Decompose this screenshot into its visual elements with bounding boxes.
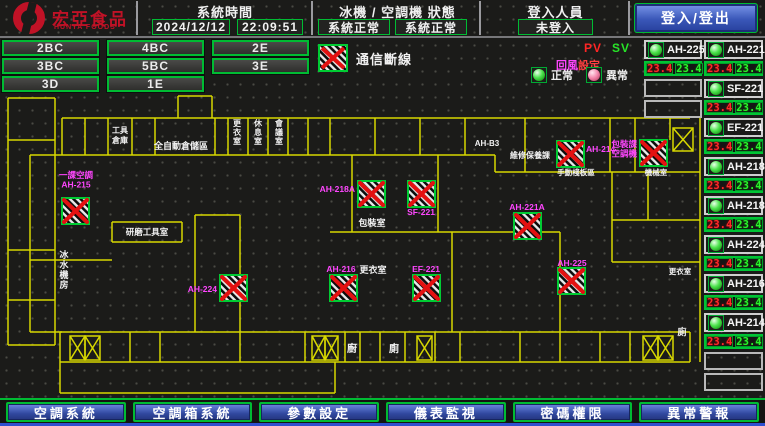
status-led-icon	[708, 315, 724, 331]
sv-value: 23.4	[735, 297, 762, 308]
map-marker-AH-224[interactable]: AH-224	[188, 275, 247, 301]
pv-value: 23.4	[706, 258, 733, 269]
map-marker-label: AH-218A	[320, 184, 355, 194]
sv-value: 23.4	[735, 102, 762, 113]
equipment-AH-218B[interactable]: AH-218B	[704, 196, 763, 215]
svg-text:手動棧板區: 手動棧板區	[557, 167, 595, 177]
map-marker-label: AH-224	[188, 284, 218, 294]
equipment-AH-224[interactable]: AH-224	[704, 235, 763, 254]
pv-value: 23.4	[706, 180, 733, 191]
pv-value: 23.4	[646, 63, 673, 74]
equipment-name: AH-218A	[727, 161, 765, 173]
svg-text:更衣室: 更衣室	[669, 266, 692, 276]
equipment-name: AH-214	[727, 317, 765, 329]
map-marker-label: EF-221	[412, 264, 440, 274]
equipment-name: AH-224	[727, 239, 765, 251]
equipment-slot-empty	[644, 100, 702, 118]
status-led-icon	[708, 198, 724, 214]
floor-button-4bc[interactable]: 4BC	[107, 40, 204, 56]
bottom-nav-bar: 空調系統空調箱系統參數設定儀表監視密碼權限異常警報	[0, 398, 765, 426]
floor-button-5bc[interactable]: 5BC	[107, 58, 204, 74]
nav-parameter-settings[interactable]: 參數設定	[259, 402, 379, 422]
sv-legend-label: SV	[612, 41, 630, 55]
equipment-values-AH-214: 23.423.4	[704, 334, 763, 349]
equipment-values-AH-218A: 23.423.4	[704, 178, 763, 193]
svg-text:會議室: 會議室	[274, 118, 284, 146]
equipment-EF-221[interactable]: EF-221	[704, 118, 763, 137]
equipment-column-right: AH-221A23.423.4SF-22123.423.4EF-22123.42…	[704, 40, 763, 394]
equipment-name: SF-221	[727, 83, 763, 95]
divider	[136, 1, 138, 35]
top-bar: 宏亞食品 HUNYA FOODS 系統時間 2024/12/12 22:09:5…	[0, 0, 765, 38]
brand-subtitle: HUNYA FOODS	[54, 24, 116, 31]
comm-loss-legend: 通信斷線	[318, 44, 412, 72]
nav-password-authority[interactable]: 密碼權限	[513, 402, 633, 422]
nav-alarm[interactable]: 異常警報	[639, 402, 759, 422]
status-led-icon	[708, 159, 724, 175]
equipment-values-SF-221: 23.423.4	[704, 100, 763, 115]
sv-value: 23.4	[735, 258, 762, 269]
login-logout-button[interactable]: 登入/登出	[634, 3, 758, 33]
hunya-logo-icon	[8, 2, 50, 35]
floor-button-1e[interactable]: 1E	[107, 76, 204, 92]
svg-text:冰水機房: 冰水機房	[59, 249, 69, 290]
floor-button-2e[interactable]: 2E	[212, 40, 309, 56]
svg-text:AH-B3: AH-B3	[475, 139, 500, 148]
svg-text:機械室: 機械室	[645, 167, 668, 177]
equipment-name: AH-225	[667, 44, 705, 56]
map-marker-label: AH-221A	[509, 202, 544, 212]
map-marker-AH-225[interactable]: AH-225	[557, 258, 587, 294]
svg-text:廁: 廁	[677, 326, 686, 337]
pv-legend-label: PV	[584, 41, 602, 55]
equipment-slot-empty	[704, 373, 763, 391]
equipment-values-AH-218B: 23.423.4	[704, 217, 763, 232]
svg-text:休息室: 休息室	[253, 118, 263, 146]
login-user-value: 未登入	[518, 19, 593, 35]
map-marker-label: SF-221	[407, 207, 435, 217]
pv-value: 23.4	[706, 219, 733, 230]
divider	[479, 1, 481, 35]
equipment-name: AH-216	[727, 278, 765, 290]
map-marker-SF-221[interactable]: SF-221	[407, 181, 435, 217]
sv-value: 23.4	[735, 141, 762, 152]
abnormal-state-text: 異常	[606, 67, 628, 83]
equipment-AH-216[interactable]: AH-216	[704, 274, 763, 293]
status-led-icon	[708, 237, 724, 253]
equipment-values-AH-225: 23.423.4	[644, 61, 702, 76]
map-marker-AH-221A[interactable]: AH-221A	[509, 202, 544, 239]
map-marker-label: 一課空調AH-215	[59, 170, 94, 190]
svg-text:維修保養課: 維修保養課	[510, 150, 551, 160]
normal-led-icon	[531, 67, 547, 83]
system-date-value: 2024/12/12	[152, 19, 230, 35]
status-led-icon	[708, 42, 724, 58]
svg-text:倉庫: 倉庫	[111, 135, 128, 145]
equipment-AH-214[interactable]: AH-214	[704, 313, 763, 332]
ahu-status-value: 系統正常	[395, 19, 467, 35]
svg-text:研磨工具室: 研磨工具室	[126, 227, 169, 237]
map-marker-AH-214[interactable]: AH-214	[557, 141, 616, 167]
normal-state-legend: 正常	[531, 67, 573, 83]
divider	[311, 1, 313, 35]
abnormal-state-legend: 異常	[586, 67, 628, 83]
sv-value: 23.4	[735, 336, 762, 347]
sv-value: 23.4	[675, 63, 702, 74]
floor-button-3d[interactable]: 3D	[2, 76, 99, 92]
pv-value: 23.4	[706, 102, 733, 113]
pv-value: 23.4	[706, 63, 733, 74]
pv-value: 23.4	[706, 336, 733, 347]
equipment-name: AH-218B	[727, 200, 765, 212]
map-marker-label: AH-216	[326, 264, 356, 274]
equipment-values-AH-216: 23.423.4	[704, 295, 763, 310]
svg-text:廁: 廁	[389, 342, 399, 355]
equipment-slot-empty	[704, 352, 763, 370]
status-led-icon	[648, 42, 664, 58]
svg-text:更衣室: 更衣室	[233, 118, 242, 146]
sv-value: 23.4	[735, 63, 762, 74]
equipment-values-AH-221A: 23.423.4	[704, 61, 763, 76]
sv-value: 23.4	[735, 219, 762, 230]
svg-text:廚: 廚	[347, 342, 357, 355]
map-marker-label: 包裝課空調機	[611, 139, 637, 159]
pv-value: 23.4	[706, 141, 733, 152]
floor-button-3e[interactable]: 3E	[212, 58, 309, 74]
svg-text:更衣室: 更衣室	[359, 264, 386, 275]
equipment-AH-218A[interactable]: AH-218A	[704, 157, 763, 176]
elevator-symbols	[70, 128, 693, 360]
equipment-column-left: AH-22523.423.4	[644, 40, 702, 121]
map-marker-AH-218A[interactable]: AH-218A	[320, 181, 385, 207]
equipment-AH-225[interactable]: AH-225	[644, 40, 702, 59]
pv-value: 23.4	[706, 297, 733, 308]
divider	[628, 1, 630, 35]
map-marker-AH-216[interactable]: AH-216	[326, 264, 357, 301]
status-led-icon	[708, 276, 724, 292]
floor-button-3bc[interactable]: 3BC	[2, 58, 99, 74]
comm-loss-icon	[318, 44, 348, 72]
equipment-values-EF-221: 23.423.4	[704, 139, 763, 154]
map-marker-label: AH-225	[557, 258, 587, 268]
equipment-slot-empty	[644, 79, 702, 97]
equipment-name: EF-221	[727, 122, 763, 134]
equipment-values-AH-224: 23.423.4	[704, 256, 763, 271]
system-clock-value: 22:09:51	[237, 19, 303, 35]
status-led-icon	[708, 81, 724, 97]
svg-text:全自動倉儲區: 全自動倉儲區	[153, 140, 208, 151]
equipment-name: AH-221A	[727, 44, 765, 56]
chiller-status-value: 系統正常	[318, 19, 390, 35]
equipment-AH-221A[interactable]: AH-221A	[704, 40, 763, 59]
hmi-screen: { "header": { "brand": "宏亞食品", "brand_su…	[0, 0, 765, 426]
svg-text:包裝室: 包裝室	[357, 217, 385, 228]
equipment-SF-221[interactable]: SF-221	[704, 79, 763, 98]
status-led-icon	[708, 120, 724, 136]
map-marker-AH-218B[interactable]: 包裝課空調機	[611, 139, 667, 166]
sv-value: 23.4	[735, 180, 762, 191]
nav-ahu-system[interactable]: 空調箱系統	[133, 402, 253, 422]
normal-state-text: 正常	[551, 67, 573, 83]
svg-text:工具: 工具	[112, 126, 128, 135]
floor-button-2bc[interactable]: 2BC	[2, 40, 99, 56]
abnormal-led-icon	[586, 67, 602, 83]
map-marker-AH-215[interactable]: 一課空調AH-215	[59, 170, 94, 224]
map-marker-EF-221[interactable]: EF-221	[412, 264, 440, 301]
comm-loss-legend-text: 通信斷線	[356, 49, 412, 68]
room-walls	[8, 96, 700, 393]
nav-ac-system[interactable]: 空調系統	[6, 402, 126, 422]
nav-meter-monitor[interactable]: 儀表監視	[386, 402, 506, 422]
